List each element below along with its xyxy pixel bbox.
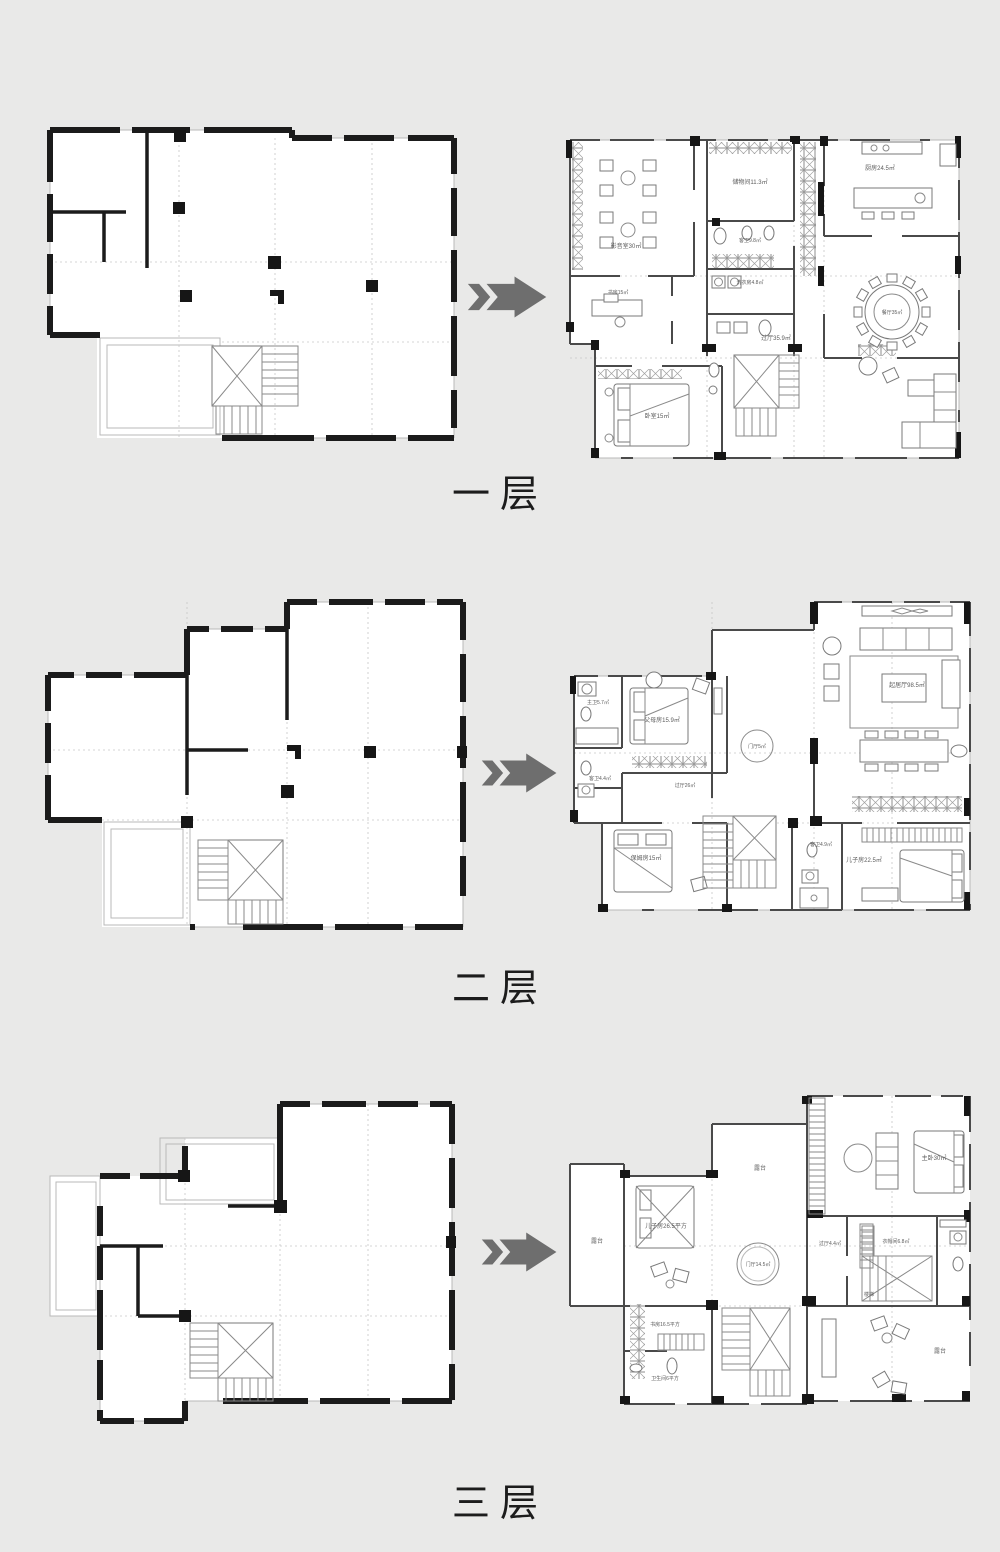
floor3-before-plan xyxy=(38,1086,468,1431)
room-label: 主卫5.7㎡ xyxy=(587,699,609,706)
page: 影音室30㎡ 储物间11.3㎡ 厨房24.5㎡ 客卫9.8㎡ 洗衣房4.8㎡ 餐… xyxy=(0,0,1000,1552)
transform-arrow-icon xyxy=(466,276,550,318)
floor1-after-plan: 影音室30㎡ 储物间11.3㎡ 厨房24.5㎡ 客卫9.8㎡ 洗衣房4.8㎡ 餐… xyxy=(562,126,967,461)
room-label: 过厅26㎡ xyxy=(675,782,696,789)
floor2-before-plan xyxy=(38,590,478,930)
room-label: 餐厅35㎡ xyxy=(882,309,903,316)
transform-arrow-icon xyxy=(480,1232,560,1272)
floor3-label: 三层 xyxy=(0,1472,1000,1527)
room-label: 露台 xyxy=(934,1347,946,1355)
room-label: 客卫4.4㎡ xyxy=(589,775,611,782)
room-label: 书房16.5平方 xyxy=(650,1321,680,1328)
room-label: 儿子房26.5平方 xyxy=(645,1222,687,1230)
room-label: 客卫4.9㎡ xyxy=(810,841,832,848)
room-label: 客卫9.8㎡ xyxy=(739,237,761,244)
floor2-after-plan: 门厅5㎡ xyxy=(562,588,977,918)
room-label: 书房15㎡ xyxy=(608,289,629,296)
room-label: 卧室15㎡ xyxy=(645,412,670,420)
room-label: 储物间11.3㎡ xyxy=(732,178,767,186)
room-label: 过厅4.4㎡ xyxy=(819,1240,841,1247)
floor2-label: 二层 xyxy=(0,957,1000,1012)
room-label: 起居厅98.5㎡ xyxy=(889,681,925,689)
svg-text:门厅14.5㎡: 门厅14.5㎡ xyxy=(746,1261,771,1268)
room-label: 过厅35.9㎡ xyxy=(761,334,791,342)
room-label: 衣帽间6.8㎡ xyxy=(883,1238,910,1245)
room-label: 主卧30㎡ xyxy=(922,1154,947,1162)
room-label: 卫生间6平方 xyxy=(651,1375,679,1382)
room-label: 影音室30㎡ xyxy=(611,242,642,250)
transform-arrow-icon xyxy=(480,753,560,793)
room-label: 儿子房22.5㎡ xyxy=(846,856,882,864)
room-label: 露台 xyxy=(591,1237,603,1245)
room-label: 露台 xyxy=(754,1164,766,1172)
room-label: 父母房15.9㎡ xyxy=(644,716,680,724)
floor3-after-plan: 门厅14.5㎡ xyxy=(562,1086,977,1421)
floor1-label: 一层 xyxy=(0,463,1000,518)
floor1-before-plan xyxy=(42,120,462,445)
svg-text:门厅5㎡: 门厅5㎡ xyxy=(748,743,766,750)
room-label: 厨房24.5㎡ xyxy=(865,164,895,172)
room-label: 保姆房15㎡ xyxy=(631,854,662,862)
room-label: 楼梯 xyxy=(864,1291,874,1298)
room-label: 洗衣房4.8㎡ xyxy=(737,279,764,286)
